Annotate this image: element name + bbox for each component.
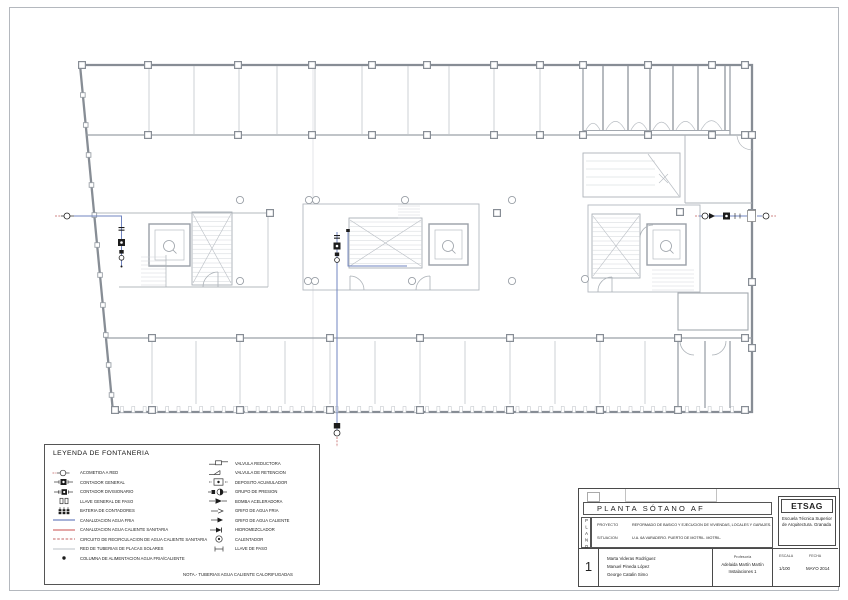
legend-item-label: HIDROMEZCLADOR: [235, 527, 275, 532]
escala-label: ESCALA: [779, 554, 793, 558]
legend-item-label: CANALIZACION AGUA CALIENTE SANITARIA: [80, 527, 168, 532]
grupo-presion-icon: [207, 488, 231, 496]
professor-name: Adelaida Martín Martín: [713, 561, 772, 568]
valvula-retencion-icon: [207, 469, 231, 477]
legend-item-label: GRIFO DE AGUA FRIA: [235, 508, 279, 513]
project-info: PROYECTO REFORMADO DE BASICO Y EJECUCION…: [591, 517, 773, 548]
title-block: PLANTA SÓTANO AF PLANO PROYECTO REFORMAD…: [578, 488, 840, 587]
bomba-aceleradora-icon: [207, 497, 231, 505]
grifo-caliente-icon: [207, 516, 231, 524]
deposito-acumulador-icon: [207, 478, 231, 486]
legend-item-valvula-retencion: VALVULA DE RETENCION: [207, 468, 286, 477]
legend-item-placas-solares: RED DE TUBERIAS DE PLACAS SOLARES: [52, 544, 163, 553]
author: George Catalin Simo: [607, 571, 712, 579]
scale-date-cell: ESCALA FECHA 1/100 MAYO 2014: [773, 548, 838, 586]
etsag-school-name: Escuela Técnica Superior de Arquitectura…: [779, 515, 835, 528]
legend-item-label: GRIFO DE AGUA CALIENTE: [235, 518, 289, 523]
valvula-reductora-icon: [207, 459, 231, 467]
author: Manuel Pineda López: [607, 563, 712, 571]
columna-alimentacion-icon: [52, 554, 76, 562]
legend-item-recirculacion-acs: CIRCUITO DE RECIRCULACION DE AGUA CALIEN…: [52, 535, 207, 544]
plano-label: PLANO: [581, 517, 591, 548]
legend-item-bomba-aceleradora: BOMBA ACELERADORA: [207, 497, 282, 506]
calentador-icon: [207, 535, 231, 543]
legend-item-grifo-fria: GRIFO DE AGUA FRIA: [207, 506, 279, 515]
legend-item-hidromezclador: HIDROMEZCLADOR: [207, 525, 275, 534]
etsag-logo: ETSAG Escuela Técnica Superior de Arquit…: [778, 496, 836, 546]
legend-item-calentador: CALENTADOR: [207, 535, 263, 544]
situacion-label: SITUACION: [597, 536, 618, 540]
legend-item-label: BOMBA ACELERADORA: [235, 499, 282, 504]
legend-item-label: DEPOSITO ACUMULADOR: [235, 480, 287, 485]
drawing-sheet: LEYENDA DE FONTANERIA NOTA.- TUBERIAS AG…: [0, 0, 848, 600]
legend-item-label: CALENTADOR: [235, 537, 263, 542]
title-block-decor: [587, 492, 600, 502]
title-block-decor: [625, 489, 717, 502]
legend-item-label: LLAVE DE PASO: [235, 546, 267, 551]
proyecto-label: PROYECTO: [597, 523, 618, 527]
legend-item-label: LLAVE GENERAL DE PASO: [80, 499, 133, 504]
legend-item-canalizacion-fria: CANALIZACION AGUA FRIA: [52, 516, 134, 525]
recirculacion-acs-icon: [52, 535, 76, 543]
llave-paso-icon: [207, 545, 231, 553]
legend-panel: LEYENDA DE FONTANERIA NOTA.- TUBERIAS AG…: [44, 444, 320, 585]
legend-item-label: BATERIA DE CONTADORES: [80, 508, 135, 513]
legend-item-valvula-reductora: VALVULA REDUCTORA: [207, 459, 281, 468]
legend-item-label: VALVULA REDUCTORA: [235, 461, 281, 466]
grifo-fria-icon: [207, 507, 231, 515]
legend-item-label: COLUMNA DE ALIMENTACION AGUA FRIA/CALIEN…: [80, 556, 185, 561]
legend-item-columna-alimentacion: COLUMNA DE ALIMENTACION AGUA FRIA/CALIEN…: [52, 554, 185, 563]
sheet-title: PLANTA SÓTANO AF: [583, 502, 772, 515]
legend-item-label: RED DE TUBERIAS DE PLACAS SOLARES: [80, 546, 163, 551]
legend-title: LEYENDA DE FONTANERIA: [53, 450, 149, 457]
legend-item-llave-general: LLAVE GENERAL DE PASO: [52, 497, 133, 506]
sheet-number: 1: [579, 548, 599, 586]
legend-item-label: CANALIZACION AGUA FRIA: [80, 518, 134, 523]
llave-general-icon: [52, 497, 76, 505]
legend-item-label: CONTADOR DIVISIONARIO: [80, 489, 133, 494]
fecha-label: FECHA: [809, 554, 821, 558]
legend-item-llave-paso: LLAVE DE PASO: [207, 544, 267, 553]
escala-value: 1/100: [779, 566, 790, 571]
placas-solares-icon: [52, 545, 76, 553]
legend-item-grupo-presion: GRUPO DE PRESION: [207, 487, 277, 496]
course-name: Instalaciones 1: [713, 568, 772, 575]
legend-item-contador-divisionario: CONTADOR DIVISIONARIO: [52, 487, 133, 496]
professor-cell: Profesor/a Adelaida Martín Martín Instal…: [713, 548, 773, 586]
bateria-contadores-icon: [52, 507, 76, 515]
professor-label: Profesor/a: [713, 554, 772, 561]
proyecto-text: REFORMADO DE BASICO Y EJECUCION DE VIVIE…: [632, 523, 771, 527]
legend-item-contador-general: CONTADOR GENERAL: [52, 478, 125, 487]
fecha-value: MAYO 2014: [806, 566, 830, 571]
contador-divisionario-icon: [52, 488, 76, 496]
acometida-icon: [52, 469, 76, 477]
legend-item-acometida: ACOMETIDA A RED: [52, 468, 118, 477]
legend-item-grifo-caliente: GRIFO DE AGUA CALIENTE: [207, 516, 289, 525]
legend-item-bateria-contadores: BATERIA DE CONTADORES: [52, 506, 135, 515]
canalizacion-acs-icon: [52, 526, 76, 534]
hidromezclador-icon: [207, 526, 231, 534]
legend-note: NOTA.- TUBERIAS AGUA CALIENTE CALORIFUGA…: [183, 572, 293, 577]
authors-cell: Marta Videras Rodríguez Manuel Pineda Ló…: [599, 548, 713, 586]
legend-item-label: CONTADOR GENERAL: [80, 480, 125, 485]
legend-item-label: VALVULA DE RETENCION: [235, 470, 286, 475]
building-outline: [80, 65, 752, 412]
situacion-text: U.A. 6A VARADERO. PUERTO DE MOTRIL. MOTR…: [632, 536, 721, 540]
author: Marta Videras Rodríguez: [607, 555, 712, 563]
legend-item-label: ACOMETIDA A RED: [80, 470, 118, 475]
legend-item-canalizacion-acs: CANALIZACION AGUA CALIENTE SANITARIA: [52, 525, 168, 534]
contador-general-icon: [52, 478, 76, 486]
legend-item-deposito-acumulador: DEPOSITO ACUMULADOR: [207, 478, 287, 487]
etsag-logo-name: ETSAG: [781, 499, 833, 513]
legend-item-label: CIRCUITO DE RECIRCULACION DE AGUA CALIEN…: [80, 537, 207, 542]
canalizacion-fria-icon: [52, 516, 76, 524]
legend-item-label: GRUPO DE PRESION: [235, 489, 277, 494]
